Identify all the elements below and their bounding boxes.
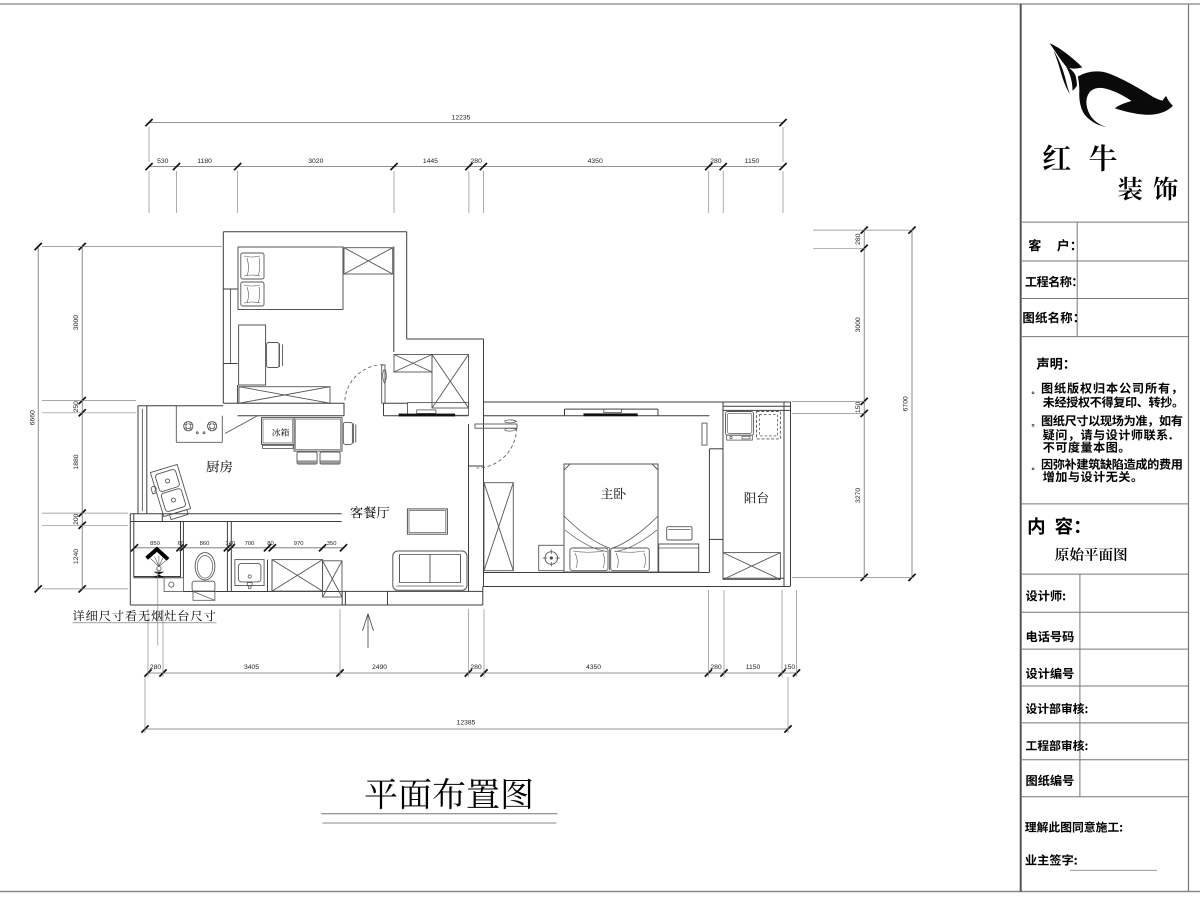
svg-text:4350: 4350	[588, 158, 603, 165]
svg-text:200: 200	[73, 513, 80, 525]
svg-text:530: 530	[157, 158, 169, 165]
svg-text:140: 140	[225, 541, 235, 547]
svg-text:280: 280	[710, 158, 722, 165]
svg-text:80: 80	[267, 541, 273, 547]
svg-text:1880: 1880	[73, 454, 80, 469]
svg-text:3405: 3405	[244, 664, 259, 671]
svg-text:860: 860	[200, 541, 210, 547]
svg-text:1180: 1180	[197, 158, 212, 165]
svg-text:350: 350	[327, 541, 337, 547]
svg-text:700: 700	[245, 541, 255, 547]
svg-text:1445: 1445	[423, 158, 438, 165]
svg-text:1150: 1150	[746, 664, 761, 671]
svg-text:12235: 12235	[452, 115, 471, 122]
svg-text:1240: 1240	[73, 549, 80, 564]
svg-text:850: 850	[150, 541, 160, 547]
svg-text:6700: 6700	[903, 396, 910, 411]
svg-text:150: 150	[855, 402, 862, 414]
svg-text:250: 250	[73, 401, 80, 413]
svg-text:3020: 3020	[308, 158, 323, 165]
svg-text:280: 280	[470, 664, 482, 671]
svg-text:6660: 6660	[30, 410, 37, 425]
svg-text:2490: 2490	[372, 664, 387, 671]
svg-text:970: 970	[294, 541, 304, 547]
svg-text:12385: 12385	[457, 720, 476, 727]
svg-text:3000: 3000	[855, 317, 862, 332]
svg-text:280: 280	[150, 664, 162, 671]
svg-text:280: 280	[471, 158, 483, 165]
svg-text:280: 280	[855, 233, 862, 245]
svg-text:1150: 1150	[745, 158, 760, 165]
svg-text:280: 280	[710, 664, 722, 671]
svg-text:3000: 3000	[73, 315, 80, 330]
svg-text:3270: 3270	[855, 488, 862, 503]
svg-text:4350: 4350	[586, 664, 601, 671]
svg-text:150: 150	[784, 664, 796, 671]
